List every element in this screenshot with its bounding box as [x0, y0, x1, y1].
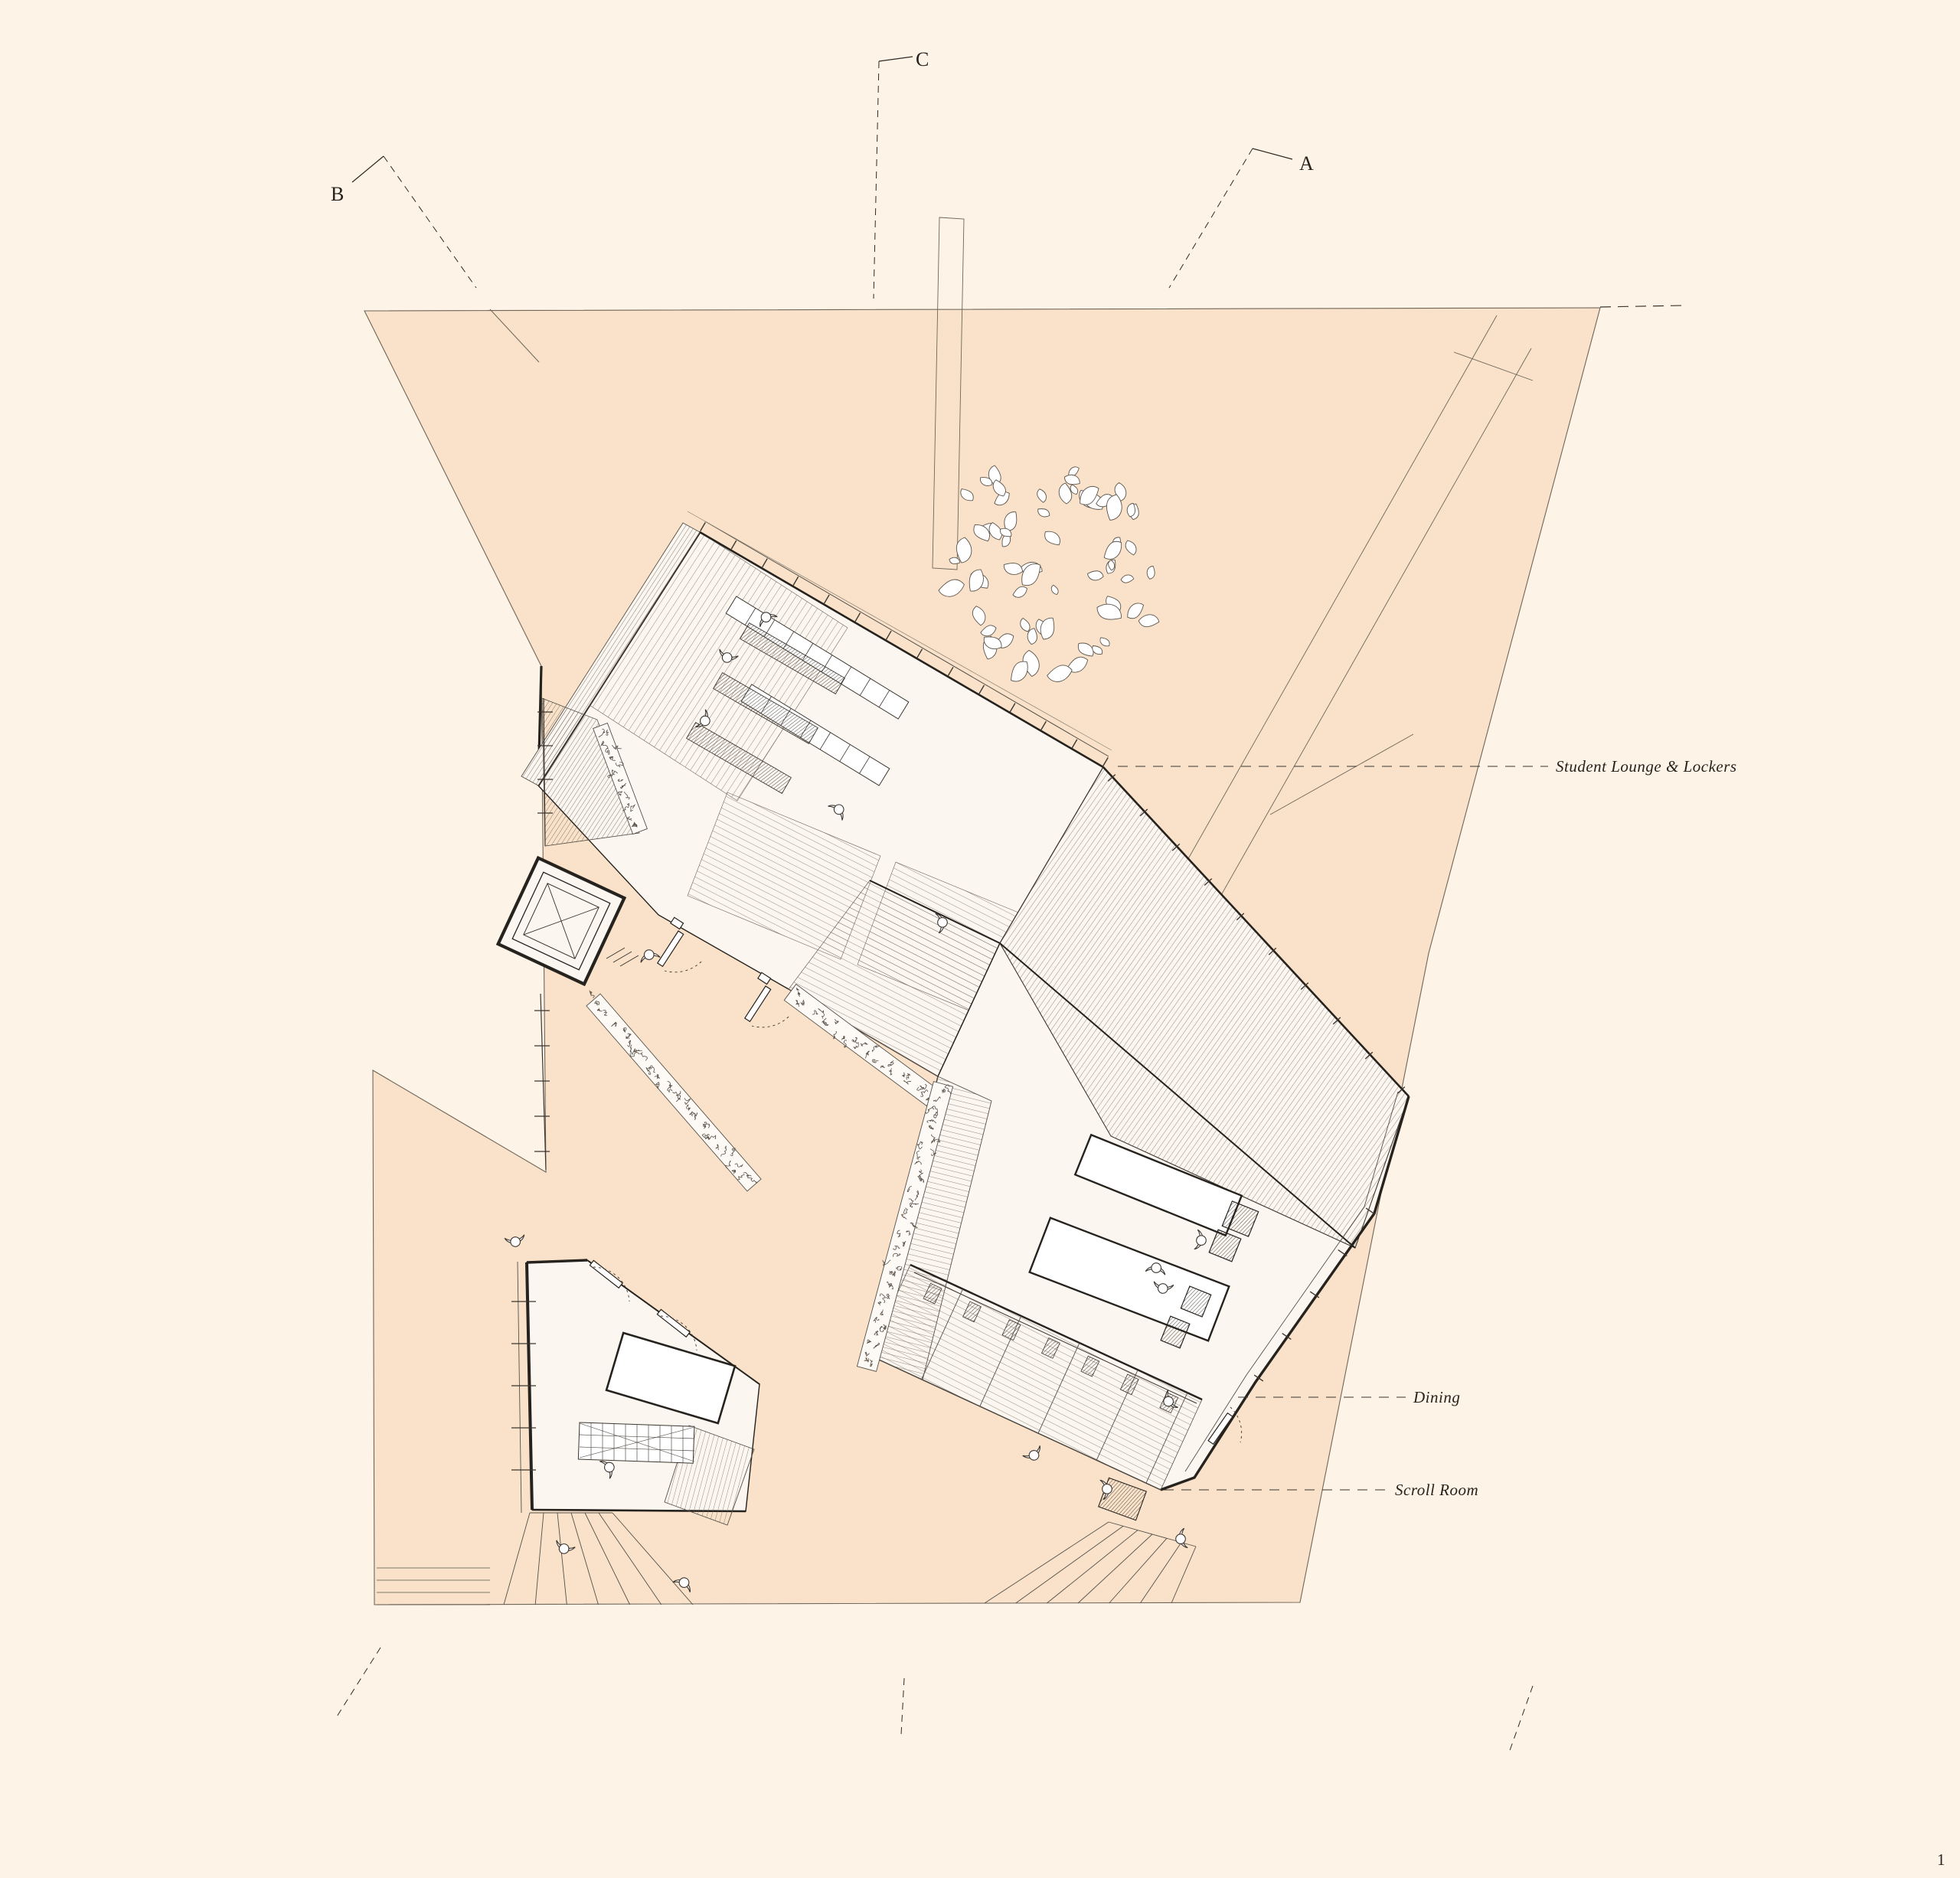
drawing-sheet: C B A Student Lounge & Lockers Dining Sc… — [0, 0, 1960, 1878]
section-letter-b: B — [331, 183, 344, 205]
label-dining: Dining — [1413, 1388, 1460, 1406]
section-letter-a: A — [1299, 152, 1314, 175]
site-plan-svg: C B A Student Lounge & Lockers Dining Sc… — [0, 0, 1960, 1878]
site-edge-dashed-continuation — [1600, 305, 1684, 307]
scroll-floor-tiles — [578, 1422, 694, 1463]
page-number: 1 — [1937, 1850, 1945, 1869]
label-student-lounge: Student Lounge & Lockers — [1556, 757, 1737, 776]
section-letter-c: C — [916, 48, 929, 70]
label-scroll-room: Scroll Room — [1395, 1481, 1478, 1499]
